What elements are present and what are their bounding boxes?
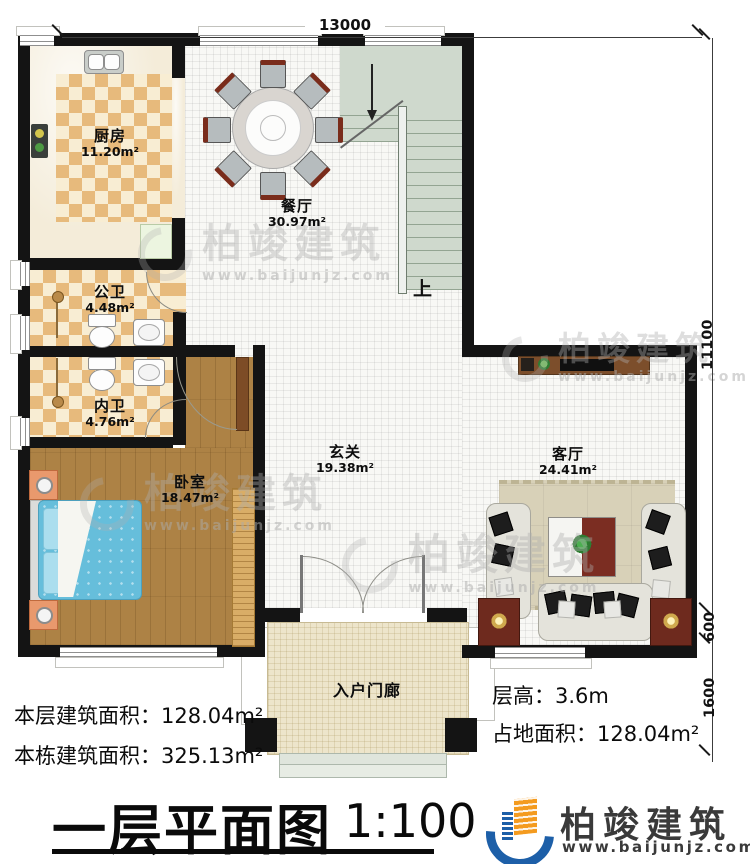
side-table	[478, 598, 520, 646]
sofa-pillow	[491, 543, 515, 567]
stair-direction-arrow	[371, 64, 373, 110]
stairs-up-label: 上	[413, 274, 432, 301]
porch-step	[279, 764, 447, 778]
floor-plan-sheet: 上	[0, 0, 750, 864]
window	[20, 316, 30, 350]
wall-nook-top	[173, 345, 235, 357]
title-underline	[52, 849, 434, 854]
stair-arrow-head-icon	[367, 110, 377, 121]
nightstand	[29, 470, 58, 500]
info-building-area: 本栋建筑面积：325.13m²	[14, 740, 263, 770]
towel-rail	[56, 358, 58, 398]
dimension-tick-icon	[698, 744, 710, 756]
room-label-bedroom: 卧室 18.47m²	[161, 474, 219, 505]
table-lamp-icon	[490, 612, 508, 630]
nightstand-lamp-icon	[36, 607, 53, 624]
brand-url[interactable]: www.baijunjz.com	[562, 838, 750, 856]
plan-scale: 1:100	[344, 794, 477, 848]
room-label-dining: 餐厅 30.97m²	[268, 198, 326, 229]
nightstand-lamp-icon	[36, 477, 53, 494]
stair-treads-run	[402, 108, 462, 290]
dining-chair	[315, 117, 343, 143]
room-label-private-bath: 内卫 4.76m²	[85, 398, 134, 429]
logo-building-orange-icon	[514, 797, 537, 835]
window	[20, 262, 30, 286]
sofa-pillow	[557, 600, 575, 618]
wall-bath-divider	[18, 346, 173, 357]
window	[495, 647, 585, 658]
burner-icon	[35, 143, 44, 152]
dimension-label-right: 11100	[700, 300, 716, 390]
fridge	[140, 224, 172, 259]
dining-chair	[260, 172, 286, 200]
stove	[31, 124, 48, 158]
room-label-foyer: 玄关 19.38m²	[316, 444, 374, 475]
wall-kitchen-right-lower	[172, 218, 185, 270]
kitchen-passage-floor	[172, 78, 185, 218]
info-floor-area: 本层建筑面积：128.04m²	[14, 700, 263, 730]
window	[20, 418, 30, 446]
sink-basin	[88, 54, 104, 70]
sink-basin	[104, 54, 120, 70]
wall-kitchen-right-upper	[172, 46, 185, 78]
wall-bath-bottom	[18, 437, 173, 448]
towel-rail-knob-icon	[52, 291, 64, 303]
wall-kitchen-bottom	[18, 258, 173, 270]
window-sill	[55, 657, 224, 668]
burner-icon	[35, 129, 44, 138]
nightstand	[29, 600, 58, 630]
bathroom-sink	[133, 319, 165, 346]
dining-chair	[203, 117, 231, 143]
kitchen-sink	[84, 50, 124, 74]
wall-stairs-right	[462, 33, 474, 357]
window-sill	[490, 658, 592, 669]
bathroom-sink	[133, 359, 165, 386]
bedroom-door-leaf	[236, 357, 249, 431]
towel-rail-knob-icon	[52, 396, 64, 408]
window	[60, 647, 217, 657]
sofa-pillow	[651, 579, 671, 599]
info-land-area: 占地面积：128.04m²	[492, 718, 699, 748]
wall-foyer-bottom-right	[427, 608, 467, 622]
dimension-line-top	[62, 37, 702, 38]
dining-table-ring	[260, 115, 286, 141]
logo-building-blue-icon	[502, 810, 513, 840]
side-table	[650, 598, 692, 646]
room-label-kitchen: 厨房 11.20m²	[81, 128, 139, 159]
table-lamp-icon	[662, 612, 680, 630]
dimension-line-right	[712, 38, 713, 762]
sofa-pillow	[494, 577, 514, 597]
window	[20, 35, 54, 46]
info-floor-height: 层高：3.6m	[492, 680, 609, 710]
tv-speaker	[521, 358, 534, 371]
brand-logo-icon	[486, 794, 552, 856]
toilet-bowl	[89, 326, 115, 348]
tv	[560, 359, 614, 371]
room-label-living: 客厅 24.41m²	[539, 446, 597, 477]
stair-rail	[398, 106, 407, 294]
dimension-label-right-mid: 600	[702, 606, 718, 648]
tv-plant-icon	[538, 358, 550, 370]
sofa-pillow	[603, 600, 621, 618]
room-label-porch: 入户门廊	[333, 682, 401, 700]
room-label-public-bath: 公卫 4.48m²	[85, 284, 134, 315]
dimension-label-top: 13000	[305, 16, 385, 34]
porch-column-right	[445, 718, 477, 752]
dining-chair	[260, 60, 286, 88]
wall-foyer-bottom-left	[258, 608, 300, 622]
toilet-bowl	[89, 369, 115, 391]
coffee-table-plant-icon	[570, 532, 594, 556]
wardrobe	[232, 488, 255, 647]
dimension-label-right-bottom: 1600	[702, 668, 718, 728]
